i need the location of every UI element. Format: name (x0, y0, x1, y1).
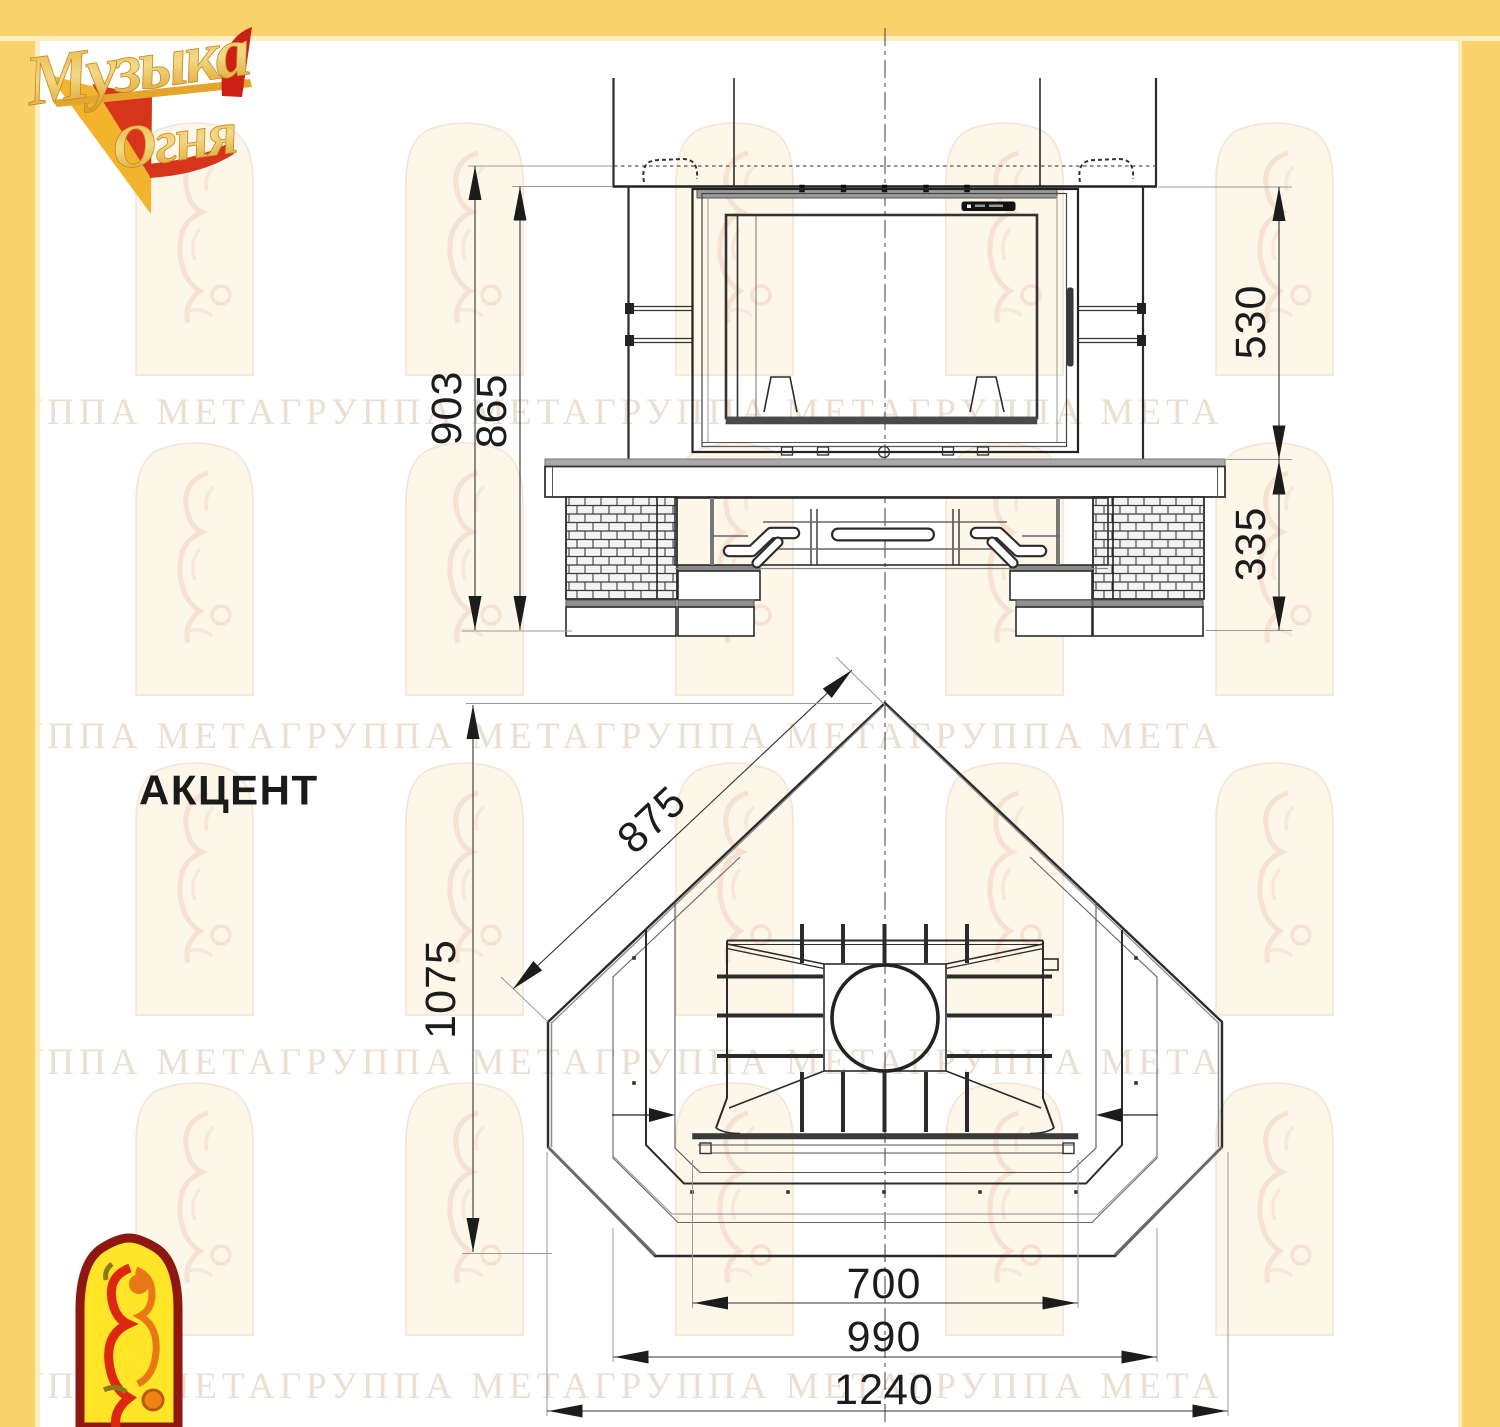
svg-text:990: 990 (847, 1313, 922, 1361)
svg-text:ГРУППА МЕТАГРУППА МЕТАГРУППА М: ГРУППА МЕТАГРУППА МЕТАГРУППА МЕТАГРУППА … (0, 392, 1224, 433)
svg-text:903: 903 (423, 371, 471, 446)
svg-text:335: 335 (1227, 507, 1275, 582)
svg-text:865: 865 (468, 374, 516, 449)
svg-text:АКЦЕНТ: АКЦЕНТ (139, 767, 319, 814)
svg-text:530: 530 (1227, 285, 1275, 360)
svg-text:ГРУППА МЕТАГРУППА МЕТАГРУППА М: ГРУППА МЕТАГРУППА МЕТАГРУППА МЕТАГРУППА … (0, 716, 1224, 757)
svg-text:700: 700 (847, 1260, 922, 1308)
svg-text:ГРУППА МЕТАГРУППА МЕТАГРУППА М: ГРУППА МЕТАГРУППА МЕТАГРУППА МЕТАГРУППА … (0, 1042, 1224, 1083)
svg-text:1240: 1240 (834, 1366, 934, 1414)
svg-text:1075: 1075 (417, 939, 465, 1039)
svg-text:ГРУППА МЕТАГРУППА МЕТАГРУППА М: ГРУППА МЕТАГРУППА МЕТАГРУППА МЕТАГРУППА … (0, 1366, 1224, 1407)
